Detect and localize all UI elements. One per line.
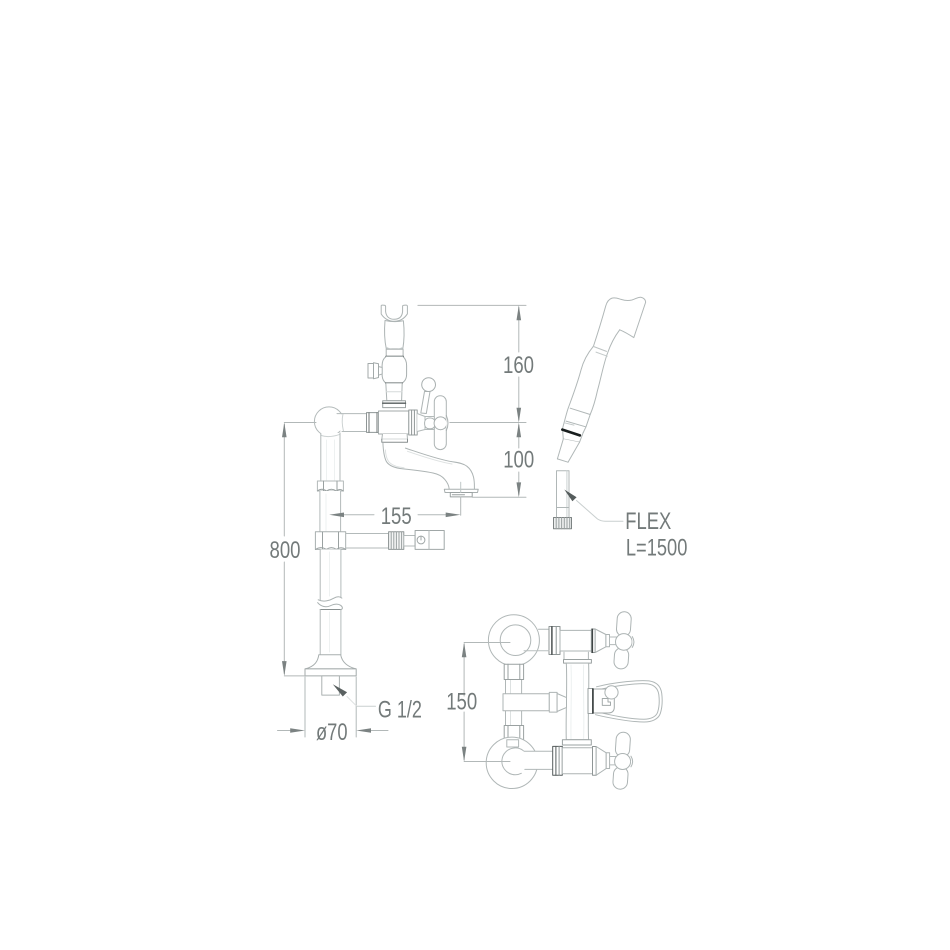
svg-text:G 1/2: G 1/2 xyxy=(378,696,422,723)
svg-text:ø70: ø70 xyxy=(316,719,348,746)
svg-text:100: 100 xyxy=(503,446,534,473)
svg-text:150: 150 xyxy=(446,688,477,715)
svg-text:155: 155 xyxy=(381,503,412,530)
svg-text:L=1500: L=1500 xyxy=(626,535,688,562)
svg-text:800: 800 xyxy=(270,537,301,564)
svg-text:FLEX: FLEX xyxy=(625,508,671,535)
svg-text:160: 160 xyxy=(503,352,534,379)
